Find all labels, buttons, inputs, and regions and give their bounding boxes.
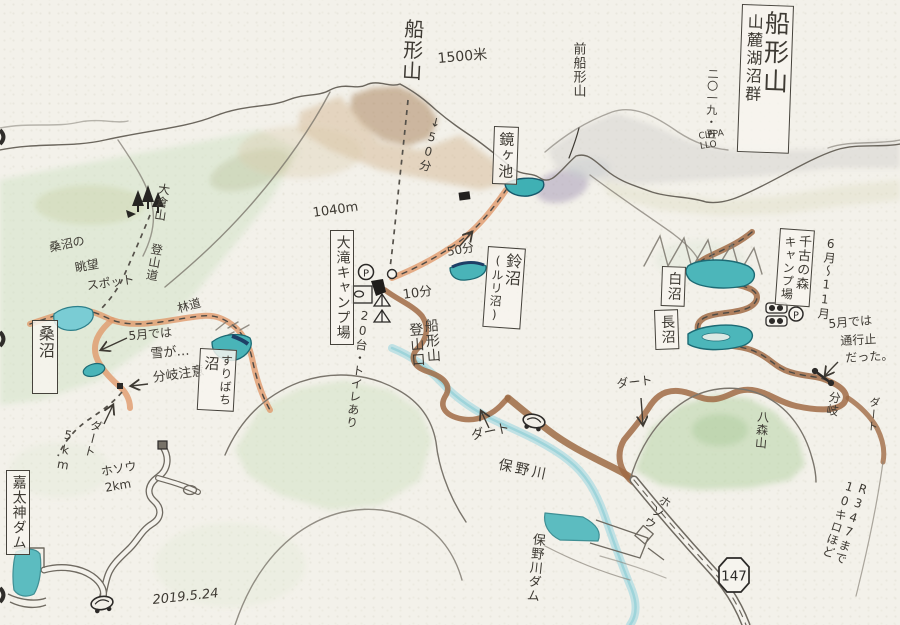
watercolor-washes <box>0 86 900 607</box>
label-trailhead-line2: 登山口 <box>406 322 425 368</box>
junction-circle-icon <box>388 270 397 279</box>
label-dirt-right-edge: ダート <box>865 396 880 433</box>
hut-icon <box>458 191 470 200</box>
parking-letter: P <box>793 311 799 322</box>
label-mt-funagata: 船形山 <box>399 18 425 82</box>
label-hachimoriyama: 八森山 <box>753 410 770 450</box>
title-box: 船形山 山麓湖沼群 <box>737 4 794 154</box>
parking-icon: P <box>359 265 374 280</box>
honogawa-river-drawing <box>392 348 636 625</box>
label-naganuma: 長沼 <box>654 309 679 350</box>
label-kadaijin-dam: 嘉太神ダム <box>6 470 30 555</box>
label-shiranuma: 白沼 <box>661 266 686 307</box>
route-shield-147: 147 <box>719 558 749 592</box>
hand-drawn-watercolor-map: P <box>0 0 900 625</box>
label-mae-funagata: 前船形山 <box>570 42 585 98</box>
junction-marker-icon <box>117 383 123 389</box>
label-kagamigaike: 鏡ヶ池 <box>492 126 519 185</box>
trailhead-marker-icon <box>371 279 386 296</box>
label-may-closed-3: だった。 <box>845 349 894 365</box>
label-trailhead: 船形山 登山口 <box>406 318 441 368</box>
label-senko-camp: 千古の森 キャンプ場 <box>775 228 815 307</box>
road-marker-icon <box>158 441 167 449</box>
campground-cabins-icon <box>766 303 787 326</box>
tent-icon <box>374 294 390 322</box>
campsite-building-icon <box>352 286 372 303</box>
car-icon <box>90 595 114 614</box>
parking-icon: P <box>789 307 803 322</box>
route-number: 147 <box>721 569 747 585</box>
label-otaki-camp: 大滝キャンプ場 <box>330 230 354 345</box>
label-suribachinuma: すりばち 沼 <box>197 348 237 412</box>
label-kuwanuma: 桑沼 <box>32 320 58 394</box>
label-suzunuma: 鈴沼 (ルリ沼) <box>482 246 526 329</box>
parking-letter: P <box>363 269 369 280</box>
label-may-closed-2: 通行止 <box>840 333 877 348</box>
